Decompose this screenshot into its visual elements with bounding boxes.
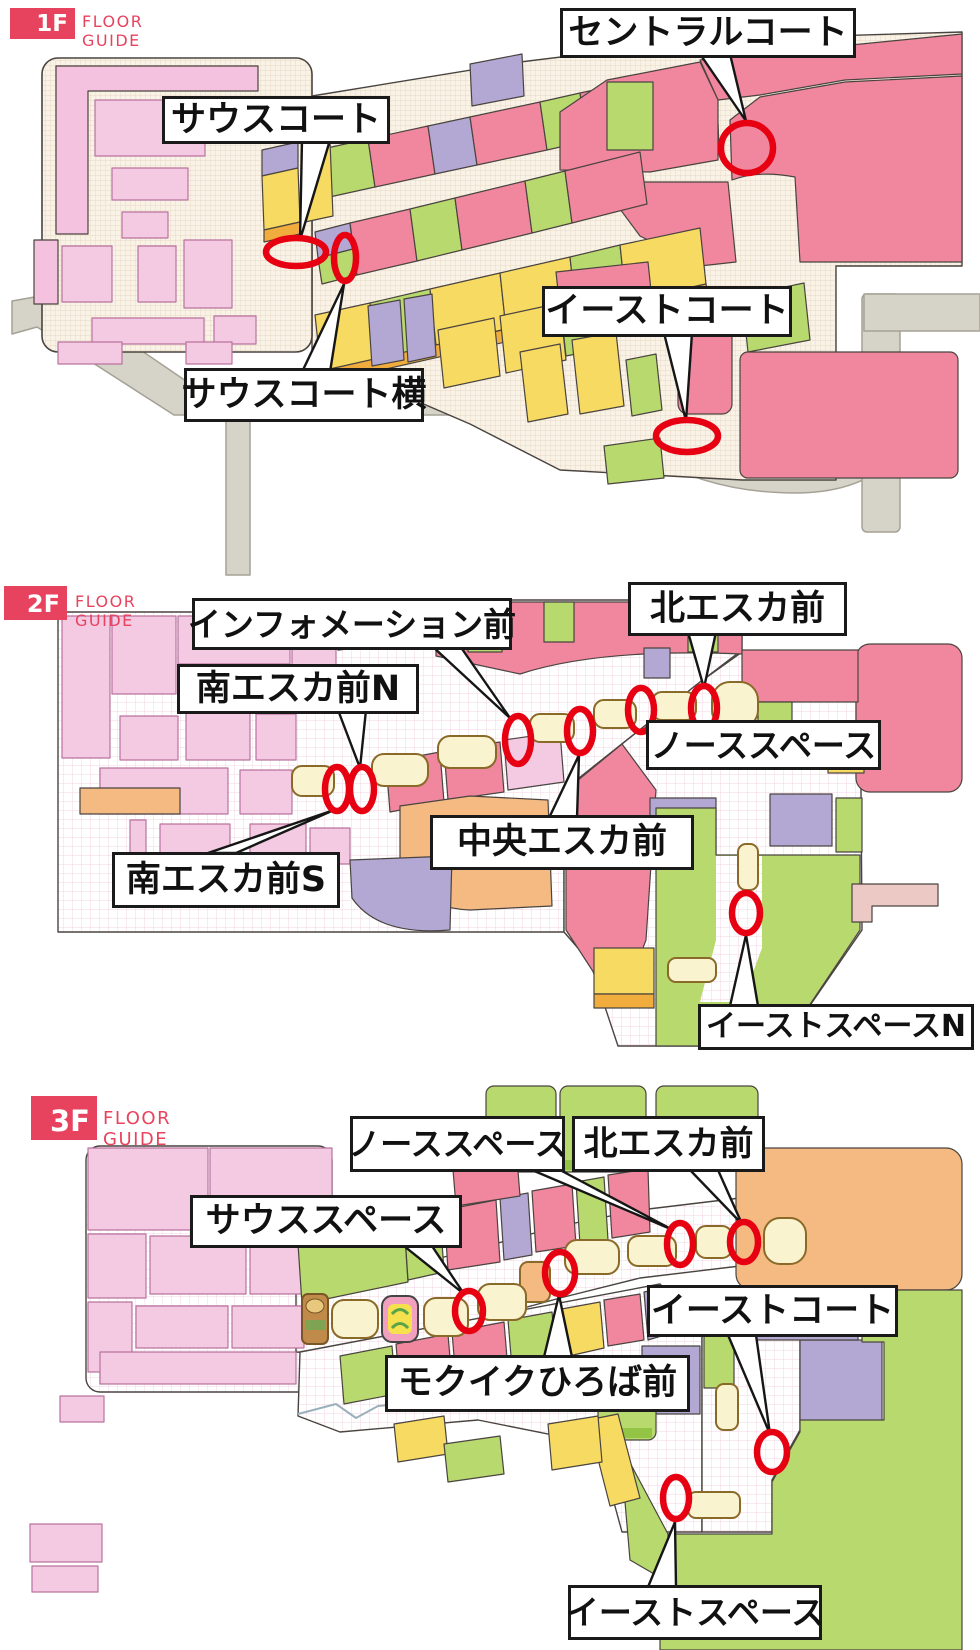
callout-central-court-1f: セントラルコート <box>560 8 856 58</box>
callout-label: 南エスカ前N <box>196 672 400 707</box>
callout-information-front-2f: インフォメーション前 <box>192 598 512 650</box>
callout-label: 南エスカ前S <box>126 863 326 898</box>
callout-south-court-1f: サウスコート <box>162 96 390 144</box>
callout-label: イーストコート <box>545 294 788 329</box>
callout-central-escalator-front-2f: 中央エスカ前 <box>430 815 694 870</box>
callout-label: セントラルコート <box>568 16 847 51</box>
callout-north-space-2f: ノーススペース <box>646 720 881 770</box>
callout-label: サウスコート <box>171 103 381 138</box>
callout-label: ノーススペース <box>651 729 876 762</box>
floor-badge-1f: 1F <box>10 8 75 39</box>
floor-1f-map <box>12 32 980 575</box>
callout-mokuiku-hiroba-front-3f: モクイクひろば前 <box>385 1355 690 1412</box>
floor-guide-label-3f: FLOOR GUIDE <box>103 1108 171 1150</box>
floor-guide-label-2f: FLOOR GUIDE <box>75 592 136 630</box>
callout-east-court-3f: イーストコート <box>647 1285 898 1337</box>
callout-north-escalator-front-2f: 北エスカ前 <box>628 582 847 636</box>
callout-south-escalator-front-s-2f: 南エスカ前S <box>112 852 340 908</box>
callout-east-space-n-2f: イーストスペースN <box>698 1004 974 1050</box>
callout-south-space-3f: サウススペース <box>190 1195 462 1248</box>
callout-label: イーストスペースN <box>706 1012 966 1042</box>
floor-badge-3f: 3F <box>31 1096 97 1140</box>
floor-guide-page: 1F FLOOR GUIDE 2F FLOOR GUIDE 3F FLOOR G… <box>0 0 980 1650</box>
callout-label: ノーススペース <box>348 1128 567 1160</box>
callout-label: モクイクひろば前 <box>398 1366 677 1401</box>
callout-south-court-side-1f: サウスコート横 <box>184 368 424 422</box>
callout-south-escalator-front-n-2f: 南エスカ前N <box>177 664 419 714</box>
callout-label: サウスコート横 <box>182 378 427 413</box>
callout-label: イーストコート <box>651 1294 894 1329</box>
callout-label: イーストスペース <box>566 1596 824 1629</box>
callout-label: 北エスカ前 <box>584 1127 754 1161</box>
callout-label: 中央エスカ前 <box>457 825 667 860</box>
callout-north-space-3f: ノーススペース <box>350 1116 565 1172</box>
callout-east-court-1f: イーストコート <box>542 286 792 337</box>
callout-east-space-3f: イーストスペース <box>568 1585 822 1640</box>
floor-badge-2f: 2F <box>4 586 67 620</box>
callout-north-escalator-front-3f: 北エスカ前 <box>572 1116 765 1172</box>
mokuiku-playground-kiosk <box>382 1296 418 1342</box>
floor-guide-label-1f: FLOOR GUIDE <box>82 12 143 50</box>
callout-label: 北エスカ前 <box>650 592 825 627</box>
callout-label: サウススペース <box>206 1204 447 1239</box>
callout-label: インフォメーション前 <box>188 608 516 641</box>
